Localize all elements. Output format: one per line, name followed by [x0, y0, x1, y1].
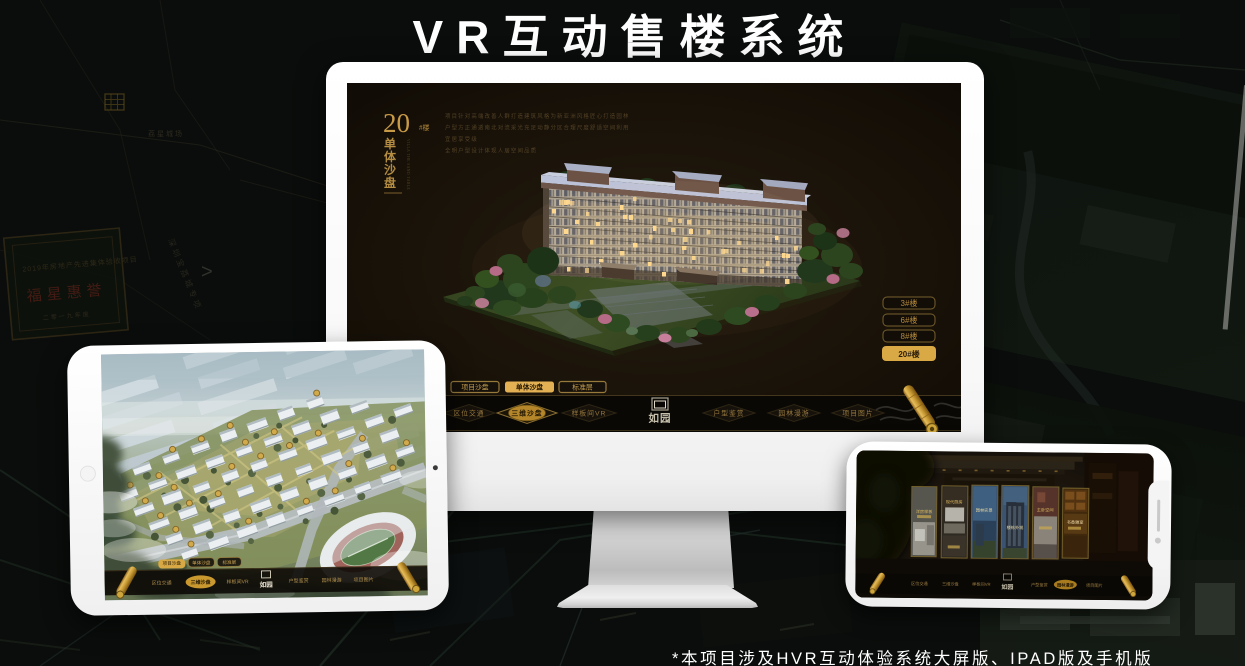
- svg-text:单体沙盘: 单体沙盘: [516, 383, 543, 392]
- svg-text:三维沙盘: 三维沙盘: [191, 579, 211, 586]
- svg-text:户型方正通透南北对流采光充足动静分区合理尺度舒适空间利用: 户型方正通透南北对流采光充足动静分区合理尺度舒适空间利用: [445, 124, 630, 132]
- svg-text:如园: 如园: [649, 412, 672, 425]
- svg-text:VILLA THE SAND TABLE: VILLA THE SAND TABLE: [406, 139, 410, 191]
- svg-text:体: 体: [384, 149, 397, 164]
- svg-text:项目沙盘: 项目沙盘: [461, 383, 488, 392]
- svg-text:沙: 沙: [384, 163, 396, 177]
- svg-text:标准层: 标准层: [572, 383, 593, 392]
- svg-text:三维沙盘: 三维沙盘: [511, 409, 542, 418]
- svg-text:20#楼: 20#楼: [898, 349, 919, 359]
- svg-text:区位交通: 区位交通: [152, 579, 172, 586]
- svg-text:20: 20: [383, 108, 410, 138]
- svg-text:8#楼: 8#楼: [901, 331, 918, 341]
- svg-text:6#楼: 6#楼: [901, 315, 918, 325]
- svg-text:园林漫游: 园林漫游: [778, 409, 809, 418]
- svg-text:样板间VR: 样板间VR: [572, 409, 607, 418]
- svg-text:项目针对高端改善人群打造建筑风格为新亚洲风格匠心打造园林: 项目针对高端改善人群打造建筑风格为新亚洲风格匠心打造园林: [445, 112, 630, 120]
- svg-text:项目图片: 项目图片: [354, 576, 374, 583]
- svg-text:区位交通: 区位交通: [453, 409, 484, 418]
- svg-text:如园: 如园: [1001, 583, 1013, 591]
- svg-text:园林漫游: 园林漫游: [322, 577, 342, 584]
- svg-text:单: 单: [384, 136, 396, 151]
- svg-text:>: >: [201, 261, 213, 283]
- svg-text:3#楼: 3#楼: [901, 298, 918, 308]
- svg-text:如园: 如园: [260, 580, 274, 589]
- svg-text:全明户型设计体现人居空间品质: 全明户型设计体现人居空间品质: [445, 147, 537, 155]
- svg-text:#楼: #楼: [419, 123, 430, 132]
- svg-text:荔星城场: 荔星城场: [148, 129, 184, 138]
- svg-text:样板间VR: 样板间VR: [227, 578, 249, 585]
- svg-text:户型鉴赏: 户型鉴赏: [713, 409, 744, 418]
- svg-text:宜居享受级: 宜居享受级: [445, 135, 478, 143]
- svg-text:项目图片: 项目图片: [842, 409, 873, 418]
- svg-text:盘: 盘: [384, 175, 396, 190]
- svg-text:户型鉴赏: 户型鉴赏: [289, 577, 309, 584]
